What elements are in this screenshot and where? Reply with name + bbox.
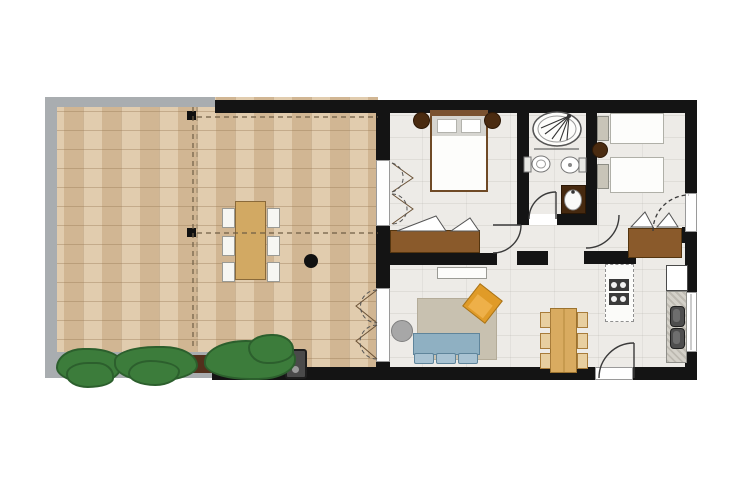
sofa-cushion	[414, 353, 434, 364]
dining-chair	[540, 333, 551, 349]
outdoor-dining-table	[235, 201, 266, 280]
bedside-stool-right	[484, 112, 501, 129]
bathroom-door-gap	[529, 214, 557, 225]
burner	[611, 296, 617, 302]
round-side-table-bedroom2	[592, 142, 608, 158]
terrace-border-left	[45, 97, 57, 378]
hedge-bush	[128, 360, 180, 386]
outdoor-chair	[222, 208, 235, 228]
sink-basin-inner	[673, 331, 680, 344]
cooktop-hob	[609, 293, 629, 305]
outdoor-chair	[222, 236, 235, 256]
floor-plan	[0, 0, 754, 498]
bedside-stool-left	[413, 112, 430, 129]
burner	[620, 296, 626, 302]
sofa	[413, 333, 480, 355]
round-side-table-living	[391, 320, 413, 342]
boundary-post	[187, 228, 196, 237]
outdoor-chair	[267, 208, 280, 228]
wall-bedroom-bathroom	[517, 113, 529, 222]
sofa-cushion	[458, 353, 478, 364]
hedge-bush	[66, 362, 114, 388]
wall-bathroom-bedroom2	[586, 113, 597, 225]
cooktop-counter	[605, 264, 634, 322]
bedroom2-wardrobe	[628, 228, 682, 258]
bifold-door-frame-bedroom	[376, 160, 390, 226]
nightstand	[597, 116, 609, 141]
master-wardrobe	[390, 230, 480, 253]
wall-stub-hall	[517, 251, 548, 265]
tall-cabinet	[666, 265, 688, 291]
terrace-tile-floor	[45, 97, 378, 378]
dining-chair	[577, 333, 588, 349]
cooktop-hob	[609, 279, 629, 291]
dining-chair	[540, 312, 551, 328]
nightstand	[597, 164, 609, 189]
dining-chair	[577, 353, 588, 369]
twin-bed-2	[610, 157, 664, 193]
bifold-door-frame-living	[376, 288, 390, 362]
wall-bedroom-south	[376, 253, 497, 265]
entrance-door-frame	[595, 367, 633, 380]
sink-counter	[666, 291, 687, 363]
burner	[611, 282, 617, 288]
living-sideboard	[437, 267, 487, 279]
hedge-bush	[248, 334, 294, 364]
sink-basin	[670, 328, 685, 349]
sofa-cushion	[436, 353, 456, 364]
dining-table	[550, 308, 577, 373]
parasol-base-dot	[304, 254, 318, 268]
outdoor-chair	[267, 262, 280, 282]
washbasin-vanity	[561, 185, 586, 214]
sink-basin	[670, 306, 685, 327]
terrace-border-top	[45, 97, 215, 107]
outdoor-chair	[267, 236, 280, 256]
boundary-post	[187, 111, 196, 120]
table-plank-line	[563, 309, 565, 372]
double-bed	[430, 110, 488, 192]
pillow	[437, 119, 457, 133]
burner	[620, 282, 626, 288]
pillow	[461, 119, 481, 133]
dining-chair	[540, 353, 551, 369]
exterior-door-frame-bedroom2	[685, 193, 697, 232]
outdoor-chair	[222, 262, 235, 282]
dining-chair	[577, 312, 588, 328]
twin-bed-1	[610, 113, 664, 144]
sink-basin-inner	[673, 309, 680, 322]
